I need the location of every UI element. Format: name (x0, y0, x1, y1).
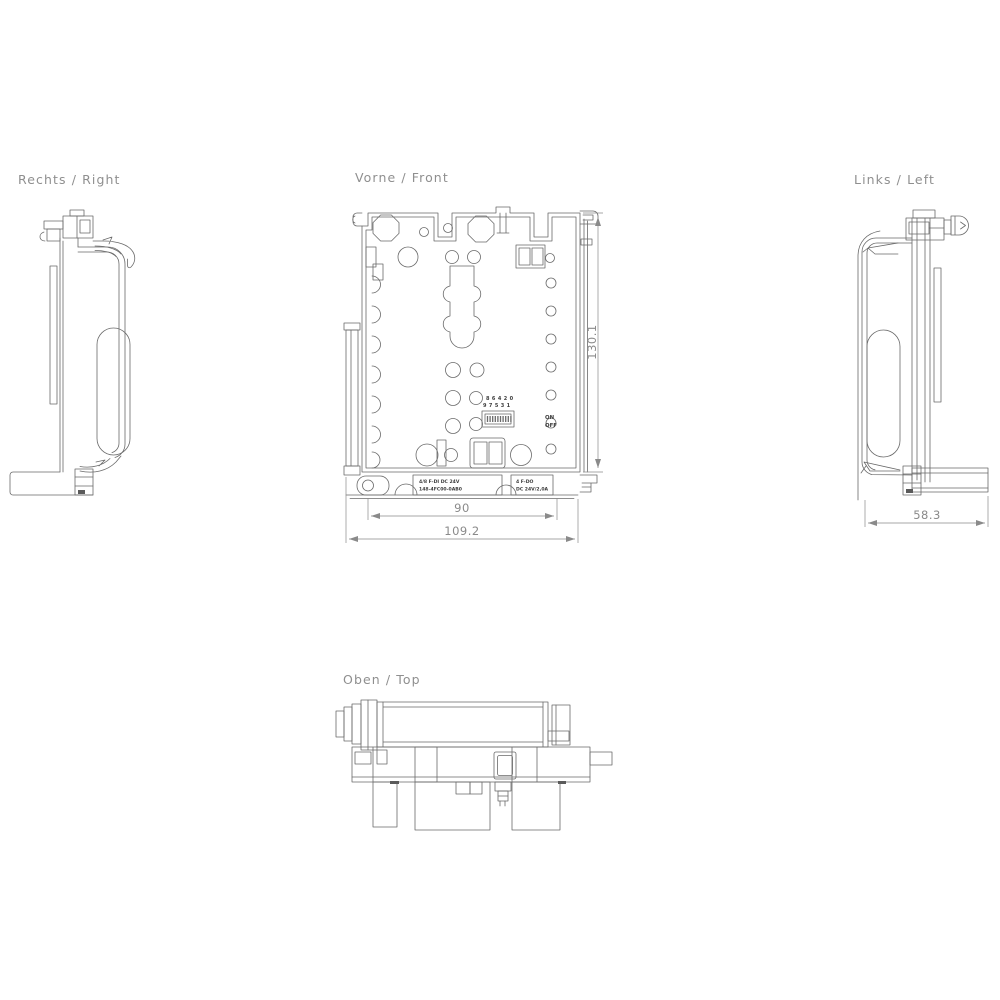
left-view-label: Links / Left (854, 172, 935, 187)
view-left: Links / Left (854, 172, 988, 500)
dimension-annotations: 130.1 90 109.2 58.3 (346, 213, 988, 543)
front-left-notches (372, 276, 381, 468)
front-center-slot (443, 266, 481, 348)
right-view-drawing (10, 210, 135, 495)
octagon-hole-center (468, 216, 494, 242)
front-center-holes (446, 363, 485, 434)
dip-numbers-top: 8 6 4 2 0 (486, 396, 514, 402)
dim-height-text: 130.1 (585, 324, 599, 359)
dim-depth-text: 58.3 (913, 508, 941, 522)
front-bottom-strip: 4/8 F-DI DC 24V 148-4FC00-0AB0 4 F-DO DC… (346, 475, 597, 499)
view-right: Rechts / Right (10, 172, 135, 495)
front-upper-row (366, 245, 555, 280)
dimension-depth: 58.3 (865, 496, 988, 527)
view-front: Vorne / Front (344, 170, 598, 499)
front-view-label: Vorne / Front (355, 170, 449, 185)
technical-drawing-canvas: Rechts / Right (0, 0, 1000, 1000)
dim-outer-width-text: 109.2 (444, 524, 479, 538)
front-lower-row (416, 438, 532, 468)
right-view-label: Rechts / Right (18, 172, 121, 187)
top-rail-bar (377, 702, 548, 747)
dimension-inner-width: 90 (368, 498, 557, 520)
module-left-line2: 148-4FC00-0AB0 (419, 487, 462, 493)
left-view-drawing (858, 210, 988, 500)
top-view-label: Oben / Top (343, 672, 421, 687)
front-side-flanges (344, 211, 598, 475)
dimension-height: 130.1 (583, 213, 603, 472)
dip-on-label: ON (545, 415, 555, 421)
module-left-line1: 4/8 F-DI DC 24V (419, 479, 460, 485)
dip-numbers-bottom: 9 7 5 3 1 (483, 403, 511, 409)
view-top: Oben / Top (336, 672, 612, 830)
dip-switch: 8 6 4 2 0 9 7 5 3 1 ON OFF (482, 396, 557, 429)
front-mounting-holes (373, 215, 494, 242)
module-right-line1: 4 F-DO (516, 479, 534, 485)
front-connector-frame (470, 438, 505, 468)
left-grip-slot (867, 330, 900, 457)
module-right-line2: DC 24V/2,0A (516, 487, 549, 493)
dip-off-label: OFF (545, 423, 557, 429)
technical-drawing-page: Rechts / Right (0, 0, 1000, 1000)
top-view-drawing (336, 700, 612, 830)
octagon-hole-left (373, 215, 399, 241)
dim-inner-width-text: 90 (454, 501, 470, 515)
